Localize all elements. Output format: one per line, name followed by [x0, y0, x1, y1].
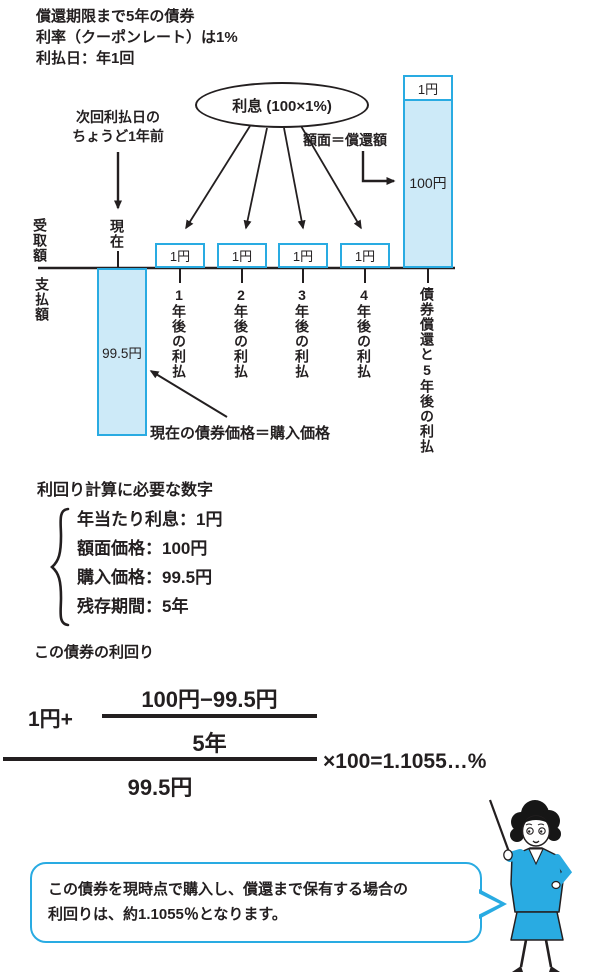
axis-receive-label: 受取額: [33, 218, 47, 263]
coupon-box-year1: 1円: [155, 243, 205, 268]
formula-outer-denominator: 99.5円: [3, 770, 317, 802]
inner-fraction-bar: [102, 714, 317, 718]
face-value-arrow: [363, 151, 394, 181]
header-line-3: 利払日：年1回: [36, 48, 238, 69]
axis-pay-label: 支払額: [35, 277, 49, 322]
pointer-stick: [490, 800, 509, 852]
purchase-price-arrow: [151, 371, 227, 417]
coupon-box-year2: 1円: [217, 243, 267, 268]
header-line-2: 利率（クーポンレート）は1%: [36, 27, 238, 48]
formula-coupon-term: 1円+: [28, 703, 73, 733]
formula-inner-numerator: 100円−99.5円: [102, 682, 317, 714]
next-payment-note: 次回利払日の ちょうど1年前: [45, 108, 191, 146]
now-label: 現在: [110, 219, 124, 249]
purchase-price-box: 99.5円: [97, 268, 147, 436]
character-skirt: [511, 912, 563, 940]
interest-arrow-3: [284, 128, 303, 228]
callout-line-2: 利回りは、約1.1055％となります。: [48, 902, 464, 927]
character-leg-right: [546, 940, 551, 967]
list-item-annual-interest: 年当たり利息：1円: [77, 505, 222, 534]
year2-label: 2年後の利払: [234, 287, 248, 379]
list-item-face-value: 額面価格：100円: [77, 534, 222, 563]
year3-label: 3年後の利払: [295, 287, 309, 379]
face-value-box: 100円: [403, 99, 453, 269]
top-coupon-box: 1円: [403, 75, 453, 101]
interest-oval: 利息 (100×1%): [195, 82, 369, 128]
yield-heading: この債券の利回り: [34, 641, 154, 662]
outer-fraction-bar: [3, 757, 317, 761]
list-item-purchase-price: 購入価格：99.5円: [77, 563, 222, 592]
bond-yield-diagram-page: 償還期限まで5年の債券 利率（クーポンレート）は1% 利払日：年1回 利息 (1…: [0, 0, 600, 979]
coupon-box-year4: 1円: [340, 243, 390, 268]
header-line-1: 償還期限まで5年の債券: [36, 6, 238, 27]
callout-line-1: この債券を現時点で購入し、償還まで保有する場合の: [48, 877, 464, 902]
required-numbers-heading: 利回り計算に必要な数字: [37, 476, 213, 500]
list-brace: [52, 509, 68, 625]
formula-inner-denominator: 5年: [102, 726, 317, 758]
character-hand: [504, 850, 512, 860]
required-numbers-list: 年当たり利息：1円 額面価格：100円 購入価格：99.5円 残存期間：5年: [77, 505, 222, 621]
interest-arrow-1: [186, 126, 250, 228]
purchase-price-note: 現在の債券価格＝購入価格: [150, 422, 330, 443]
year4-label: 4年後の利払: [357, 287, 371, 379]
formula-result: ×100=1.1055…%: [323, 750, 486, 774]
list-item-remaining-term: 残存期間：5年: [77, 592, 222, 621]
callout-bubble: この債券を現時点で購入し、償還まで保有する場合の 利回りは、約1.1055％とな…: [30, 862, 482, 943]
interest-arrow-2: [246, 128, 267, 228]
header-block: 償還期限まで5年の債券 利率（クーポンレート）は1% 利払日：年1回: [36, 6, 238, 69]
face-value-note: 額面＝償還額: [303, 130, 387, 150]
year5-redemption-label: 債券償還と5年後の利払: [420, 287, 434, 454]
character-leg-left: [521, 940, 526, 967]
year1-label: 1年後の利払: [172, 287, 186, 379]
coupon-box-year3: 1円: [278, 243, 328, 268]
